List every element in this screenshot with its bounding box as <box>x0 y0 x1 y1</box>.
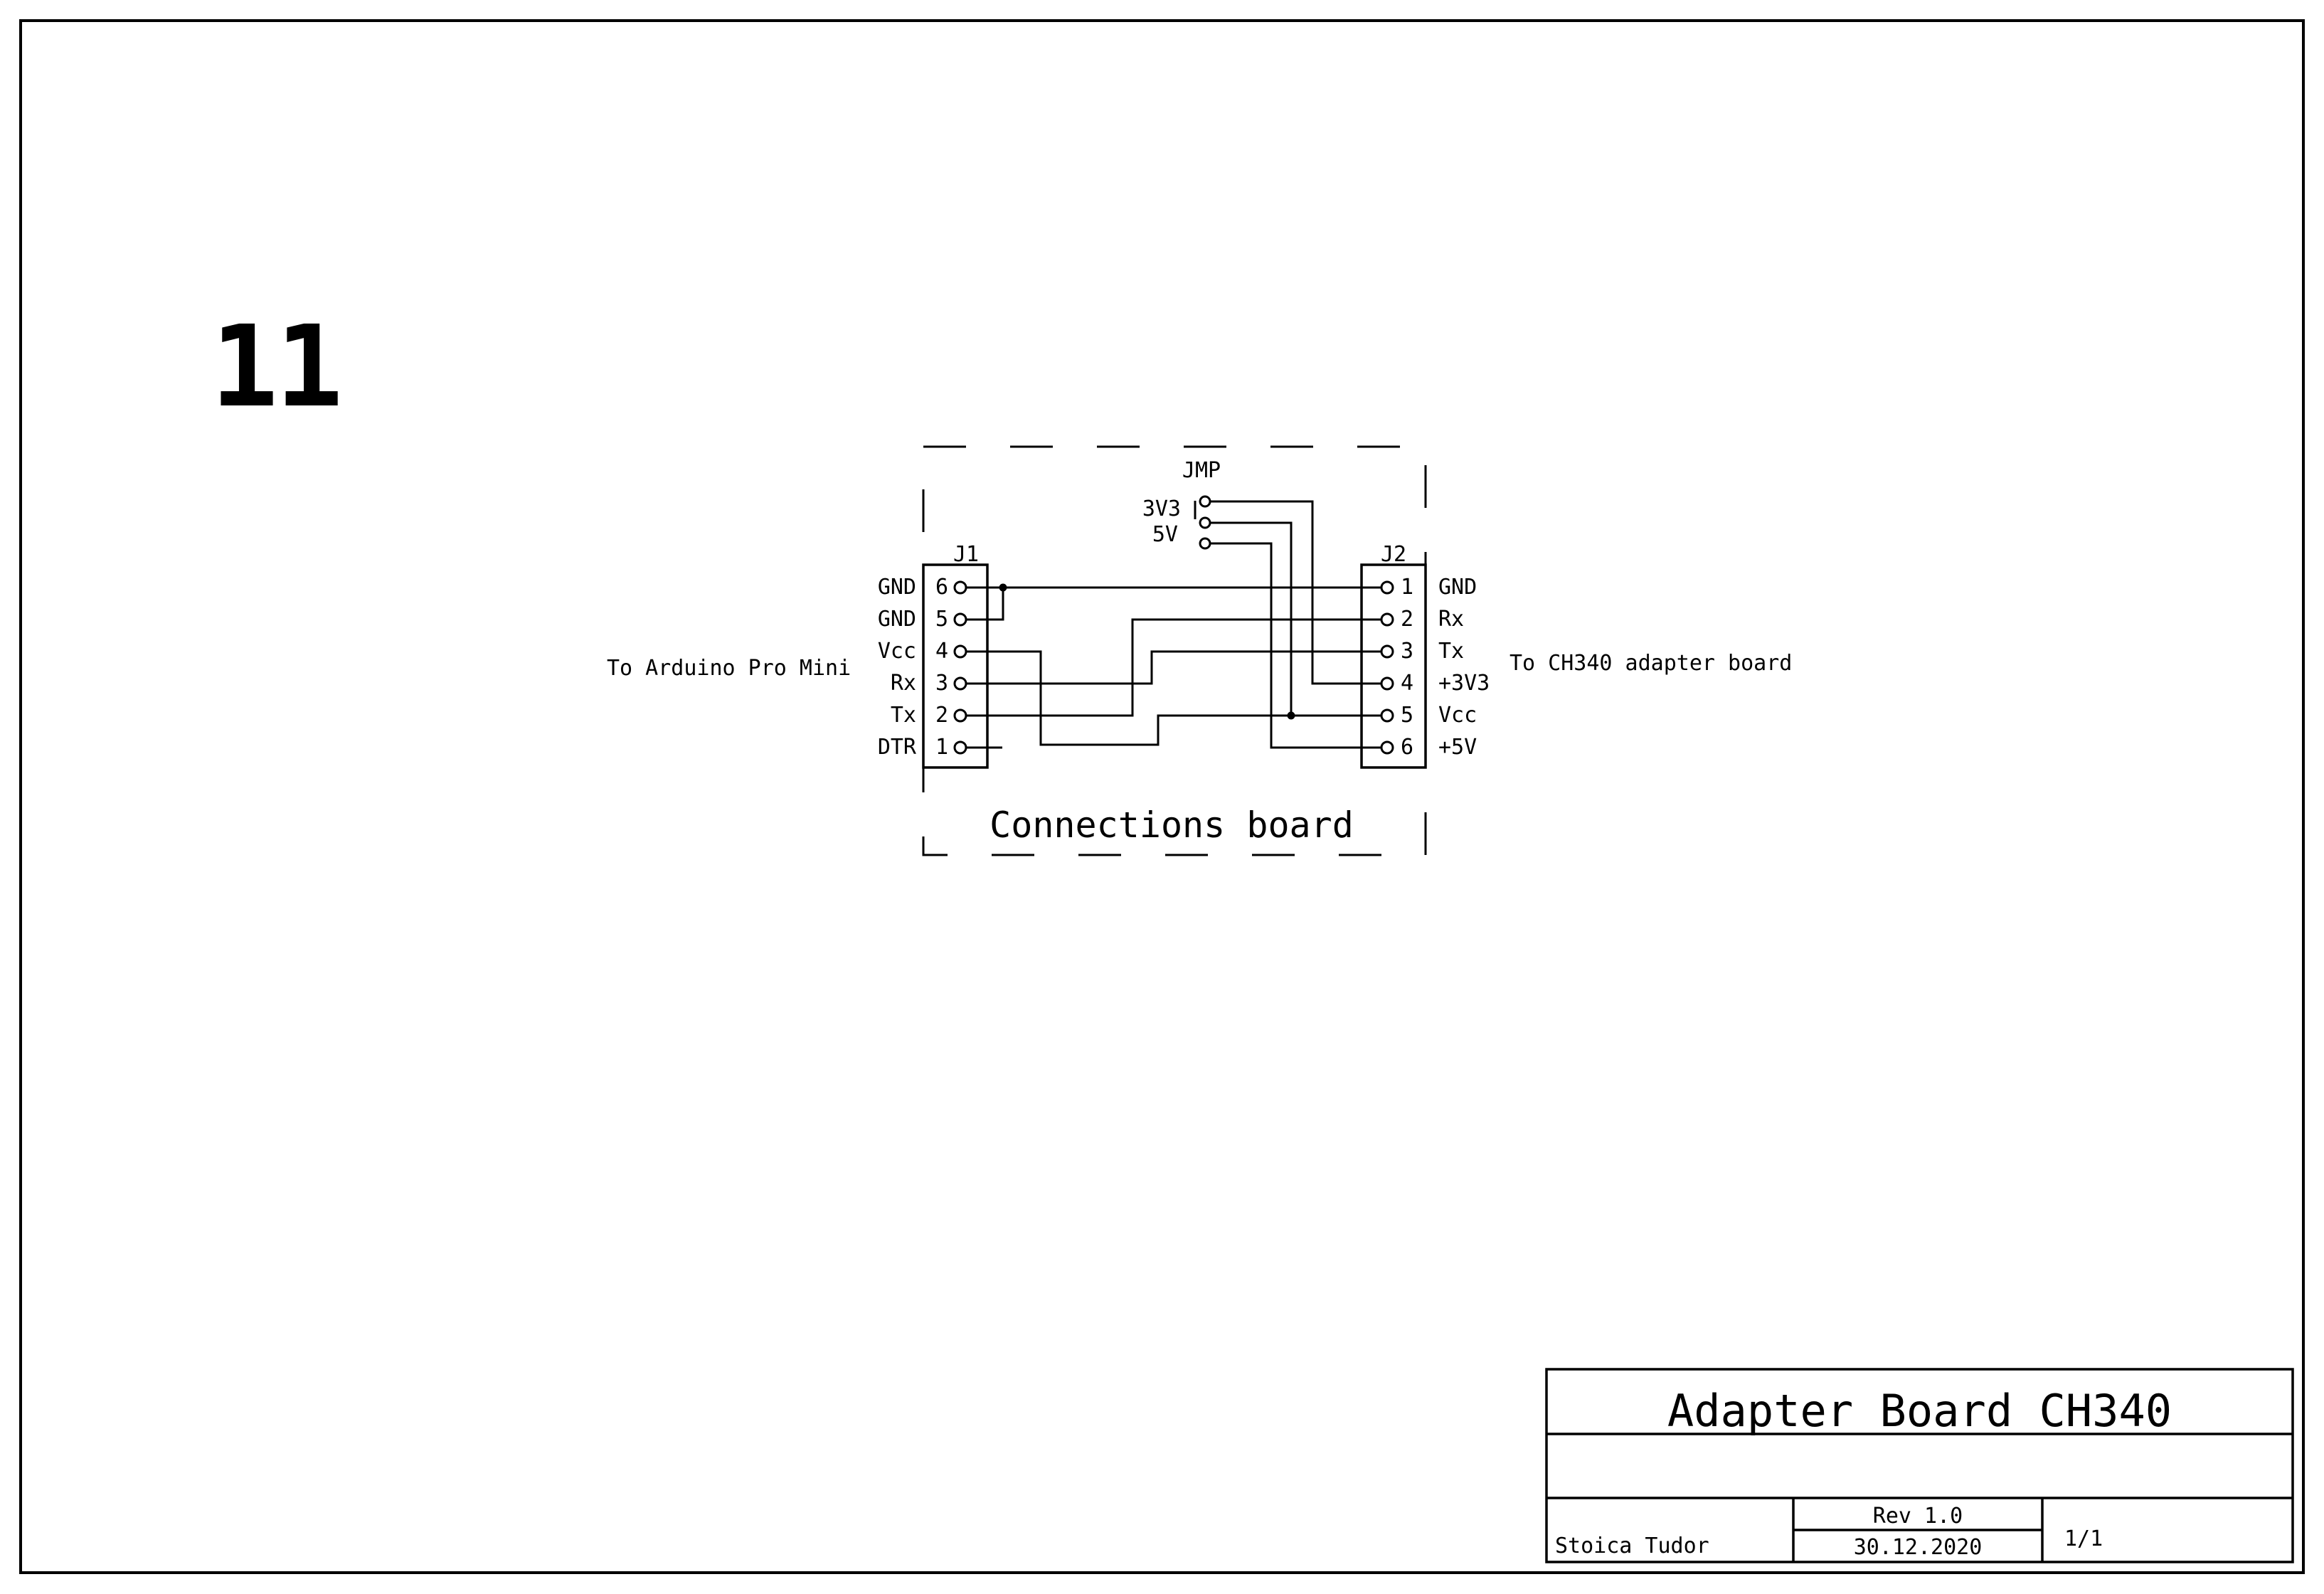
junction-dot-gnd <box>999 584 1007 592</box>
title-block-title: Adapter Board CH340 <box>1546 1388 2293 1435</box>
jmp-option-5v-label: 5V <box>1036 523 1178 547</box>
schematic-sheet: 11 J1 J2 JMP 3V3 5V GND GND Vcc Rx Tx DT… <box>0 0 2324 1594</box>
j2-pin2-label: Rx <box>1438 607 1666 632</box>
j1-pin5-label: GND <box>738 607 916 632</box>
j1-pin6-number: 6 <box>920 575 963 600</box>
j1-pin4-number: 4 <box>920 639 963 664</box>
j2-pin5-label: Vcc <box>1438 703 1666 728</box>
j2-pin5-number: 5 <box>1386 703 1428 728</box>
j1-pin2-label: Tx <box>738 703 916 728</box>
page-border <box>21 21 2303 1573</box>
title-block-revision: Rev 1.0 <box>1793 1504 2042 1529</box>
j1-pin2-number: 2 <box>920 703 963 728</box>
board-label: Connections board <box>851 805 1492 845</box>
j1-pin3-number: 3 <box>920 671 963 696</box>
schematic-linework <box>0 0 2324 1594</box>
wire-jmp-3v3 <box>1210 501 1381 684</box>
j2-designator: J2 <box>1358 543 1429 567</box>
sheet-number: 11 <box>211 311 367 423</box>
j1-pin1-number: 1 <box>920 735 963 760</box>
jmp-designator: JMP <box>1145 459 1258 483</box>
wire-jmp-5v <box>1210 543 1381 748</box>
j1-pin1-label: DTR <box>738 735 916 760</box>
title-block-date: 30.12.2020 <box>1793 1536 2042 1560</box>
j2-pin4-number: 4 <box>1386 671 1428 696</box>
j2-pin6-number: 6 <box>1386 735 1428 760</box>
wire-tx-to-rx <box>966 620 1381 716</box>
jmp-pin-circle-3v3 <box>1200 496 1210 506</box>
jmp-pin-circle-common <box>1200 518 1210 528</box>
junction-dot-vcc <box>1288 712 1295 720</box>
wire-rx-to-tx <box>966 652 1381 684</box>
title-block-author: Stoica Tudor <box>1555 1534 1790 1558</box>
j2-pin1-label: GND <box>1438 575 1666 600</box>
j1-designator: J1 <box>930 543 1002 567</box>
title-block-page-number: 1/1 <box>2064 1527 2278 1551</box>
j2-pin6-label: +5V <box>1438 735 1666 760</box>
left-note: To Arduino Pro Mini <box>607 657 891 681</box>
j2-pin2-number: 2 <box>1386 607 1428 632</box>
j1-pin6-label: GND <box>738 575 916 600</box>
j2-pin3-number: 3 <box>1386 639 1428 664</box>
jmp-pin-circles <box>1200 496 1210 548</box>
j1-pin5-number: 5 <box>920 607 963 632</box>
right-note: To CH340 adapter board <box>1509 652 1837 676</box>
jmp-option-3v3-label: 3V3 <box>1039 497 1181 521</box>
j2-pin1-number: 1 <box>1386 575 1428 600</box>
jmp-pin-circle-5v <box>1200 538 1210 548</box>
wire-vcc <box>966 652 1381 745</box>
